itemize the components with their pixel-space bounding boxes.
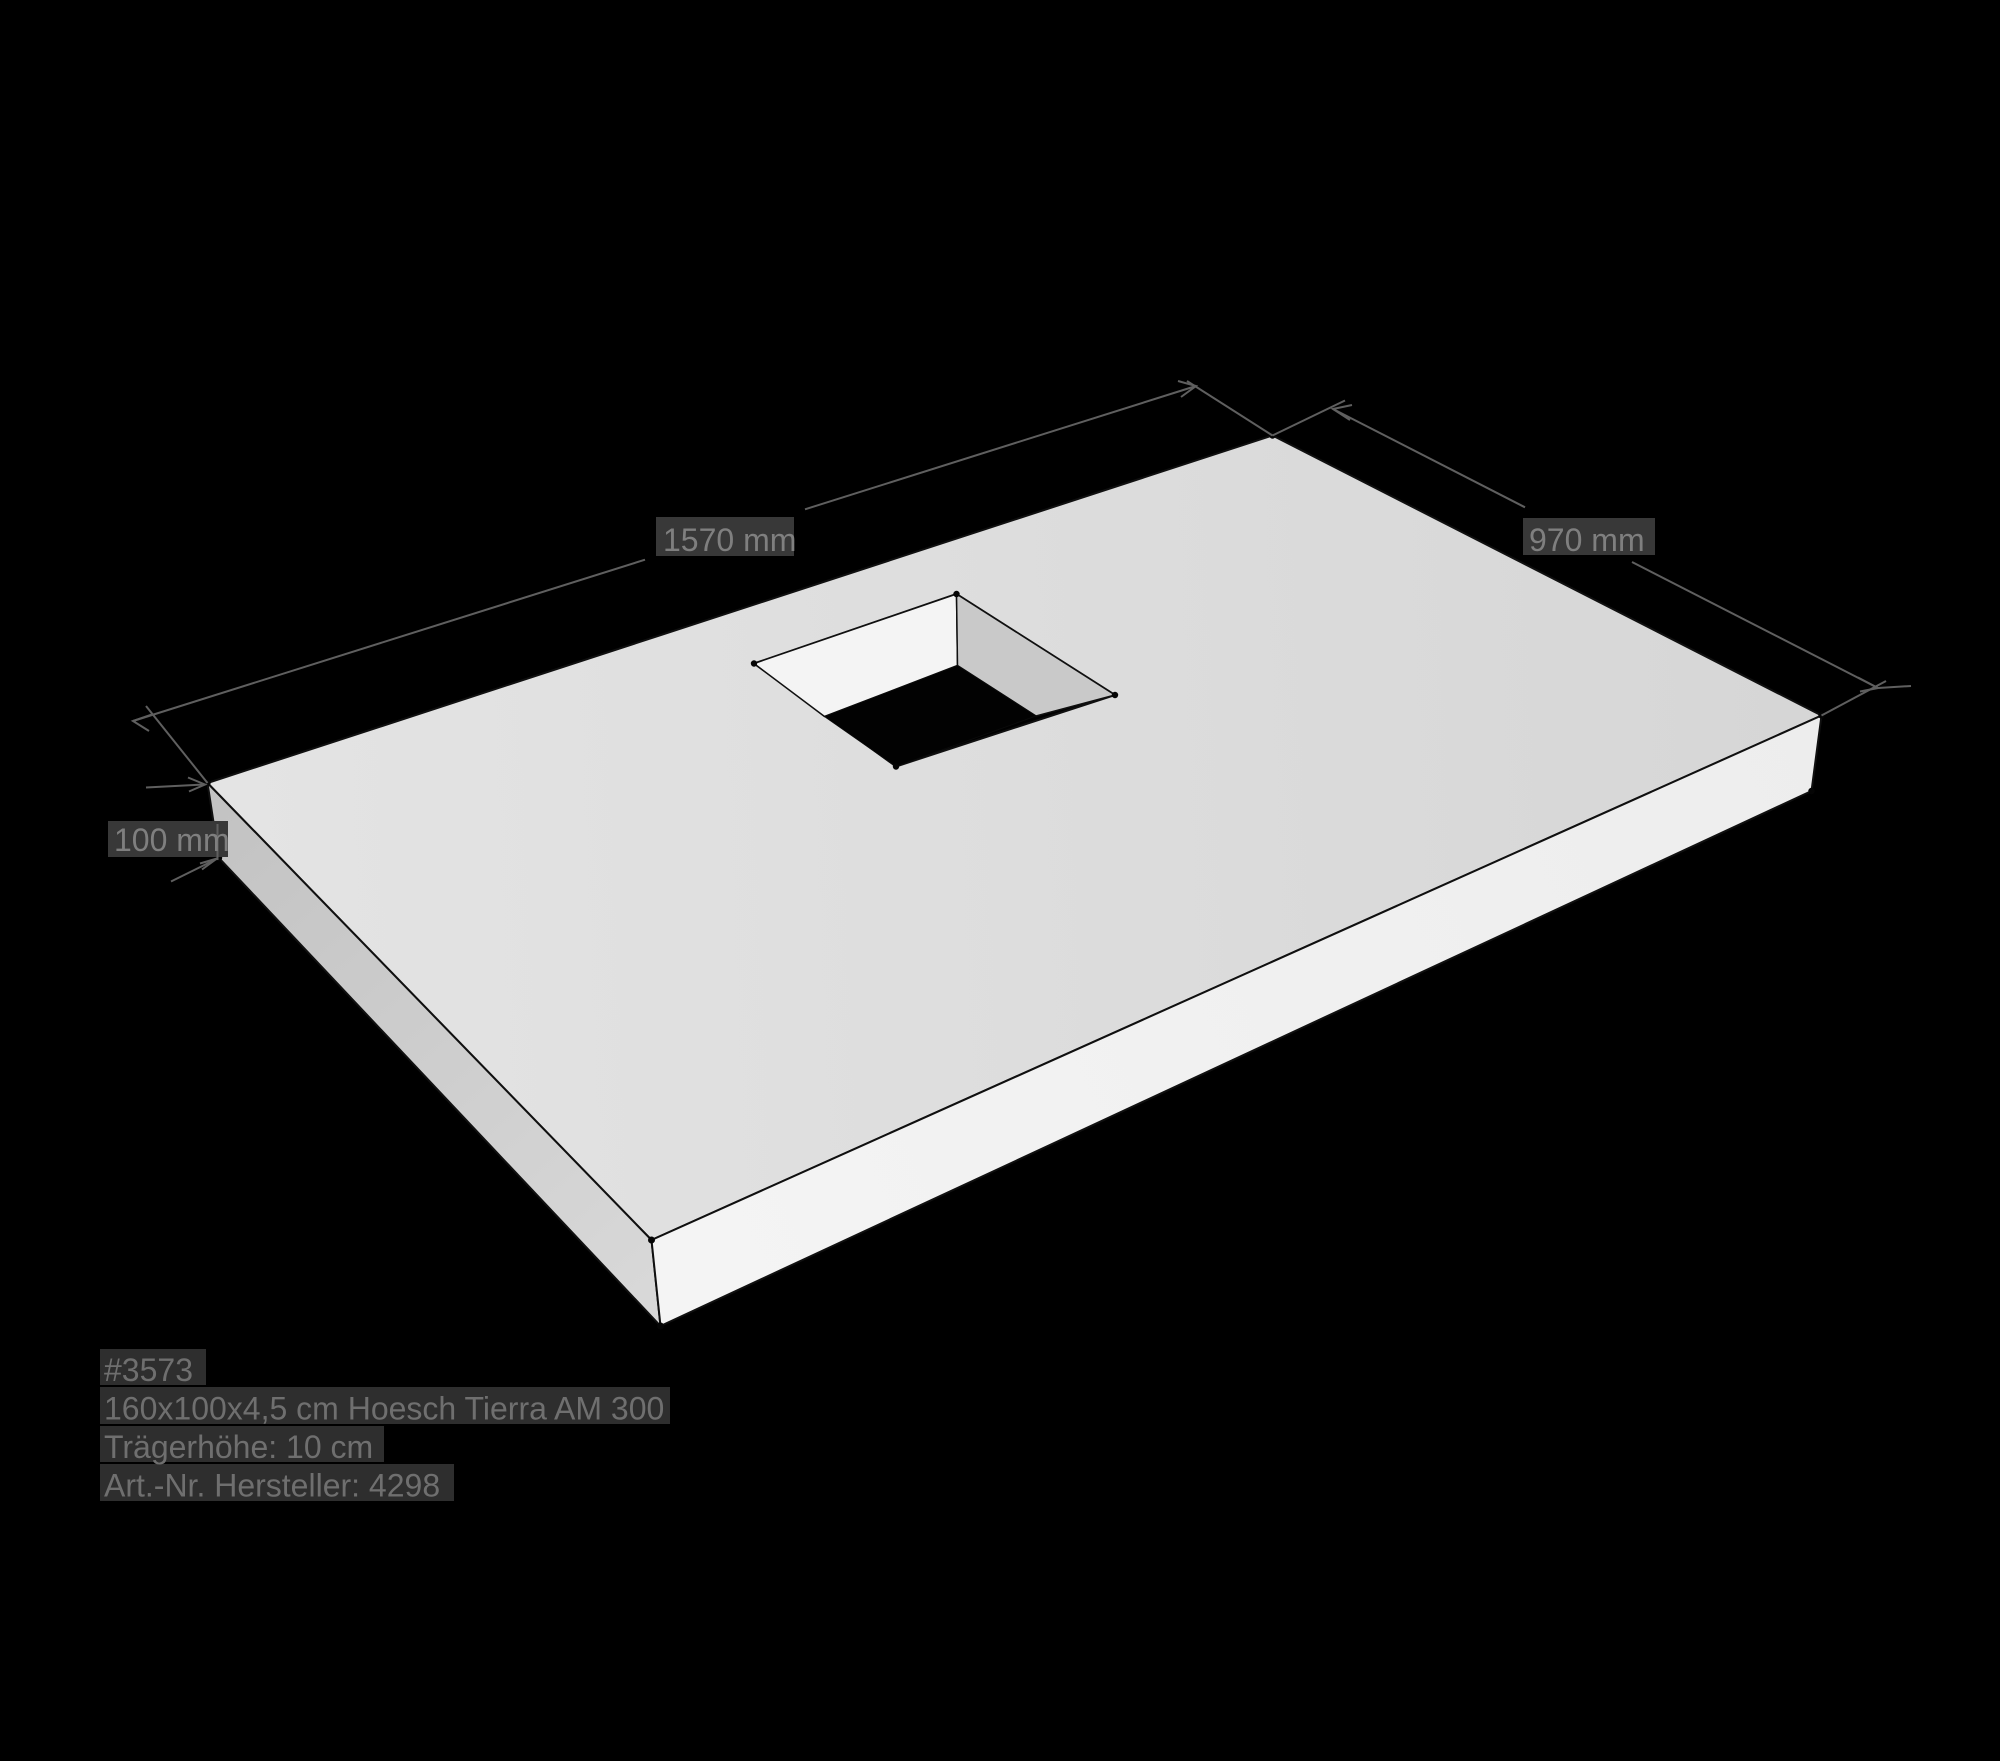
svg-text:Art.-Nr. Hersteller: 4298: Art.-Nr. Hersteller: 4298	[104, 1468, 440, 1504]
svg-text:#3573: #3573	[104, 1352, 193, 1388]
svg-text:1570 mm: 1570 mm	[663, 522, 796, 558]
svg-text:970 mm: 970 mm	[1529, 522, 1645, 558]
svg-text:160x100x4,5 cm Hoesch Tierra A: 160x100x4,5 cm Hoesch Tierra AM 300	[104, 1391, 664, 1427]
svg-text:Trägerhöhe: 10 cm: Trägerhöhe: 10 cm	[104, 1429, 373, 1465]
svg-text:100 mm: 100 mm	[114, 822, 230, 858]
